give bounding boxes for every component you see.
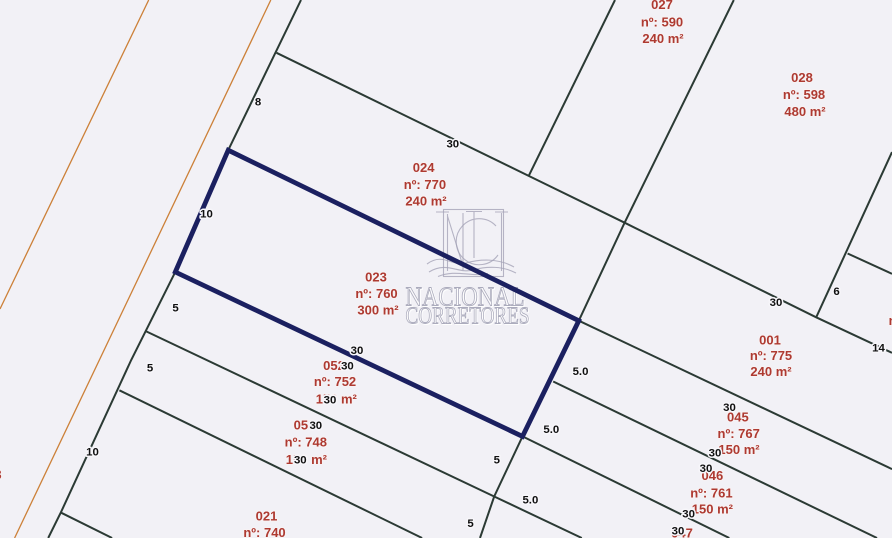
svg-text:30: 30 [324,395,337,407]
svg-text:5: 5 [467,518,474,530]
svg-text:nº: 761: nº: 761 [690,485,732,500]
svg-text:30: 30 [709,448,722,460]
svg-text:5.0: 5.0 [522,495,538,507]
svg-text:nº: 770: nº: 770 [404,177,446,192]
svg-text:nº: 740: nº: 740 [243,525,285,538]
svg-text:150 m²: 150 m² [316,392,358,407]
svg-text:021: 021 [256,508,278,523]
svg-text:5: 5 [494,455,501,467]
svg-text:30: 30 [341,361,354,373]
svg-text:3: 3 [0,467,2,482]
svg-text:nº: nº [889,313,892,328]
svg-text:240 m²: 240 m² [405,194,447,209]
svg-text:8: 8 [255,97,261,109]
svg-text:30: 30 [682,509,695,521]
svg-text:5: 5 [147,363,154,375]
svg-text:14: 14 [872,343,885,355]
svg-text:240 m²: 240 m² [642,31,684,46]
svg-text:10: 10 [200,209,213,221]
svg-text:6: 6 [833,286,839,298]
svg-text:10: 10 [86,447,99,459]
svg-text:150 m²: 150 m² [692,501,734,516]
svg-text:027: 027 [651,0,673,12]
svg-text:30: 30 [723,402,736,414]
svg-text:nº: 767: nº: 767 [718,426,760,441]
svg-text:30: 30 [672,526,685,538]
svg-text:240 m²: 240 m² [750,364,792,379]
svg-text:001: 001 [759,333,781,348]
svg-text:30: 30 [294,455,307,467]
svg-text:nº: 752: nº: 752 [314,374,356,389]
svg-text:5: 5 [172,303,179,315]
svg-text:5.0: 5.0 [543,424,559,436]
svg-text:150 m²: 150 m² [718,442,760,457]
svg-text:028: 028 [791,70,813,85]
svg-text:nº: 590: nº: 590 [641,14,683,29]
svg-text:023: 023 [365,270,387,285]
svg-text:150 m²: 150 m² [286,452,328,467]
svg-text:nº: 760: nº: 760 [355,286,397,301]
svg-text:024: 024 [413,160,435,175]
svg-text:CORRETORES: CORRETORES [406,303,530,330]
svg-text:5.0: 5.0 [573,366,589,378]
svg-text:nº: 598: nº: 598 [783,87,825,102]
svg-text:30: 30 [700,463,713,475]
svg-text:30: 30 [446,139,459,151]
svg-text:300 m²: 300 m² [357,302,399,317]
svg-text:480 m²: 480 m² [784,104,826,119]
svg-text:30: 30 [770,297,783,309]
svg-text:nº: 775: nº: 775 [750,348,792,363]
svg-text:30: 30 [351,345,364,357]
svg-text:nº: 748: nº: 748 [285,435,327,450]
svg-text:30: 30 [309,420,322,432]
